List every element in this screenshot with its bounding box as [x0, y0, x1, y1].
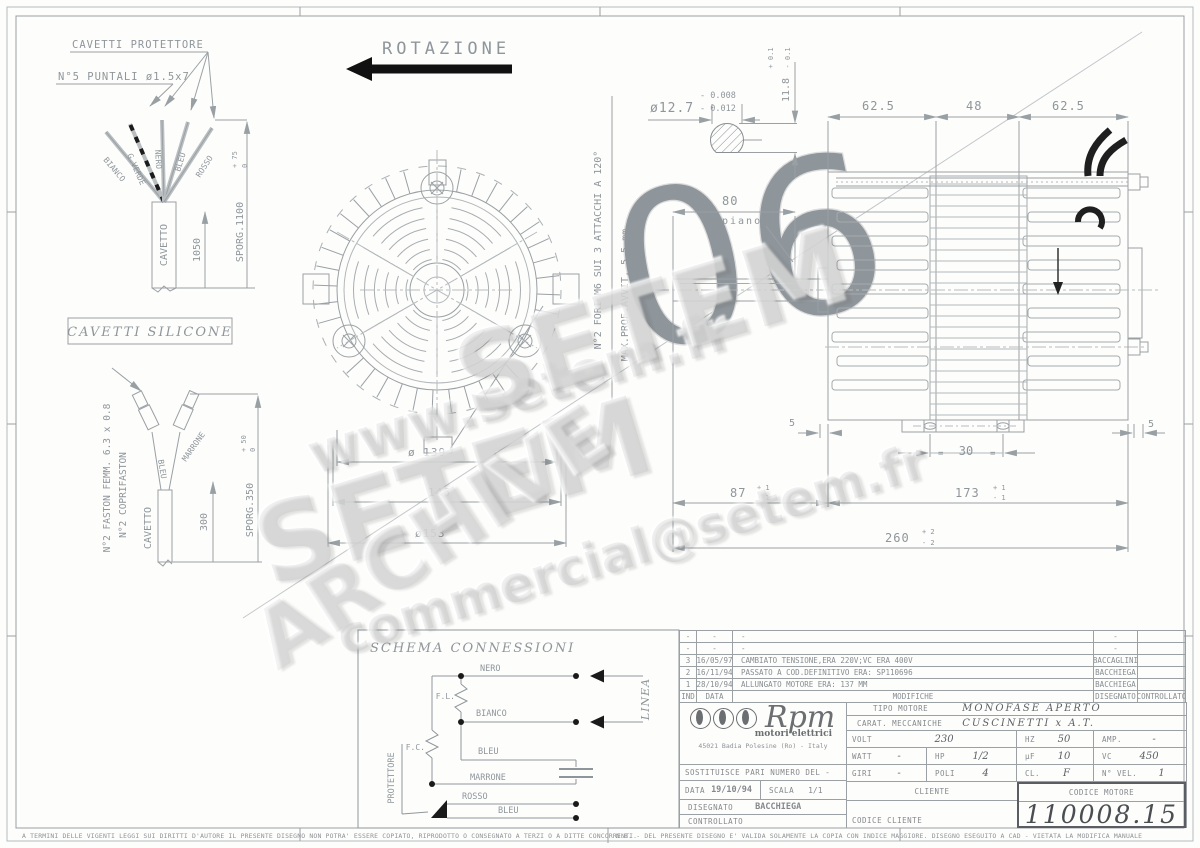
- watt-label: WATT: [847, 752, 872, 761]
- cliente-label: CLIENTE: [914, 787, 949, 796]
- brand-subtitle: motori elettrici: [680, 729, 846, 739]
- rev-chk: [1138, 679, 1186, 691]
- faston-note: N°2 FASTON FEMM. 6.3 x 0.8: [102, 403, 113, 552]
- hz-value: 50: [1058, 734, 1071, 745]
- tipo-motore-cell: TIPO MOTORE MONOFASE APERTO: [847, 702, 1186, 716]
- rev-chk: [1138, 667, 1186, 679]
- flat-tol-minus: - 0.1: [784, 47, 792, 68]
- amp-value: -: [1152, 734, 1155, 745]
- revision-table: - - - - - - - - 3 16/05/97 CAMBIATO TENS…: [679, 630, 1186, 703]
- rotation-label: ROTAZIONE: [382, 39, 510, 59]
- footer-validity-note: N.B. - DEL PRESENTE DISEGNO E' VALIDA SO…: [616, 832, 1142, 840]
- rpm-logo-icon: [736, 708, 757, 729]
- uf-value: 10: [1058, 751, 1071, 762]
- codice-motore-label: CODICE MOTORE: [1069, 788, 1134, 797]
- dim-sporg1100: SPORG.1100: [235, 202, 246, 262]
- schema-title: SCHEMA CONNESSIONI: [370, 641, 575, 656]
- volt-label: VOLT: [847, 735, 872, 744]
- rev-desc: CAMBIATO TENSIONE,ERA 220V;VC ERA 400V: [733, 655, 1094, 667]
- schema-connessioni: SCHEMA CONNESSIONI NERO BIANCO F.L. F.C.: [358, 630, 679, 828]
- silicone-cable-label: CAVETTO: [143, 507, 154, 549]
- rev-chk: [1138, 643, 1186, 655]
- schema-nero: NERO: [480, 664, 500, 674]
- carat-value: CUSCINETTI x A.T.: [962, 718, 1095, 729]
- poli-cell: POLI 4: [927, 765, 1017, 782]
- disegnato-label: DISEGNATO: [680, 803, 733, 812]
- vc-cell: VC 450: [1094, 748, 1186, 765]
- controllato-cell: CONTROLLATO: [680, 815, 847, 828]
- protettore-contact: [431, 800, 447, 818]
- company-logo-cell: Rpm motori elettrici 45021 Badia Polesin…: [680, 702, 847, 765]
- codice-cliente-label: CODICE CLIENTE: [852, 816, 922, 825]
- footer-copyright-note: A TERMINI DELLE VIGENTI LEGGI SUI DIRITT…: [22, 832, 637, 840]
- codice-motore-value: 110008.15: [1025, 800, 1178, 829]
- schema-fc: F.C.: [406, 743, 425, 752]
- cavetti-protettore-title: CAVETTI PROTETTORE: [72, 39, 204, 51]
- dim-sporg350: SPORG.350: [245, 483, 256, 537]
- cavetti-protettore-detail: CAVETTI PROTETTORE N°5 PUNTALI ø1.5x7 BI…: [56, 39, 255, 292]
- codice-motore-box: CODICE MOTORE 110008.15: [1017, 782, 1186, 828]
- cable-label: CAVETTO: [159, 224, 170, 266]
- flat-tol-plus: + 0.1: [767, 47, 775, 68]
- dim-87: 87: [730, 486, 746, 500]
- hz-cell: HZ 50: [1017, 731, 1094, 748]
- schema-bianco: BIANCO: [476, 709, 507, 719]
- dim-62-left: 62.5: [862, 99, 895, 113]
- shaft-tol-bot: - 0.012: [700, 104, 736, 114]
- nvel-value: 1: [1158, 768, 1164, 779]
- sostituisce-value: -: [825, 768, 830, 777]
- rev-ind: 1: [680, 679, 697, 691]
- amp-cell: AMP. -: [1094, 731, 1186, 748]
- rev-date: 16/11/94: [697, 667, 733, 679]
- hp-label: HP: [927, 752, 945, 761]
- cliente-cell: CLIENTE: [847, 782, 1017, 801]
- giri-value: -: [897, 768, 900, 779]
- dim-fan-diameter: ø 139: [408, 446, 446, 459]
- uf-label: µF: [1017, 752, 1035, 761]
- rev-date: -: [697, 643, 733, 655]
- schema-fl: F.L.: [436, 692, 455, 701]
- rev-by: -: [1094, 643, 1138, 655]
- dim-80: 80: [722, 194, 738, 208]
- watt-cell: WATT -: [847, 748, 927, 765]
- volt-value: 230: [934, 734, 953, 745]
- rev-by: BACCHIEGA: [1094, 667, 1138, 679]
- tipo-label: TIPO MOTORE: [847, 704, 928, 713]
- schema-linea: LINEA: [639, 678, 652, 721]
- depth-note: MAX.PROF.AVVIT. 5.5 mm: [620, 229, 631, 361]
- giri-cell: GIRI -: [847, 765, 927, 782]
- rpm-logo-icon: [690, 708, 711, 729]
- dim-173-minus: - 1: [993, 494, 1006, 502]
- coprifaston-note: N°2 COPRIFASTON: [118, 452, 129, 538]
- data-scala-cell: DATA 19/10/94 SCALA 1/1: [680, 781, 847, 800]
- dim-62-right: 62.5: [1052, 99, 1085, 113]
- wire-label-nero: NERO: [153, 150, 163, 170]
- motor-lead-wires: [1078, 130, 1126, 228]
- rev-by: -: [1094, 631, 1138, 643]
- giri-label: GIRI: [847, 769, 872, 778]
- foot-eq-left: =: [938, 449, 944, 459]
- data-value: 19/10/94: [711, 785, 752, 795]
- rev-desc: ALLUNGATO MOTORE ERA: 137 MM: [733, 679, 1094, 691]
- puntali-note: N°5 PUNTALI ø1.5x7: [58, 71, 190, 83]
- schema-marrone: MARRONE: [470, 773, 506, 783]
- controllato-label: CONTROLLATO: [680, 817, 743, 826]
- rev-by: BACCAGLINI: [1094, 655, 1138, 667]
- rev-date: -: [697, 631, 733, 643]
- dim-260-plus: + 2: [922, 528, 935, 536]
- vc-label: VC: [1094, 752, 1112, 761]
- schema-bleu-top: BLEU: [478, 747, 498, 757]
- linea-arrow-1: [590, 670, 604, 683]
- carat-meccaniche-cell: CARAT. MECCANICHE CUSCINETTI x A.T.: [847, 716, 1186, 731]
- dim-173: 173: [955, 486, 980, 500]
- cl-label: CL.: [1017, 769, 1040, 778]
- poli-value: 4: [982, 768, 988, 779]
- rpm-logo-icon: [713, 708, 734, 729]
- rev-date: 16/05/97: [697, 655, 733, 667]
- rev-ind: 3: [680, 655, 697, 667]
- watt-value: -: [897, 751, 900, 762]
- holes-note: N°2 FORI M6 SUI 3 ATTACCHI A 120°: [593, 151, 604, 350]
- carat-label: CARAT. MECCANICHE: [847, 719, 942, 728]
- front-view: ø 139 146 ø153 N°2 FORI M6 SUI 3 ATTACCH…: [303, 96, 631, 547]
- drawing-sheet: www.setem.fr SETEM SETEM commercial@sete…: [0, 0, 1200, 848]
- stator-laminations: [930, 184, 1027, 415]
- rev-desc: PASSATO A COD.DEFINITIVO ERA: SP110696: [733, 667, 1094, 679]
- dim-173-plus: + 1: [993, 484, 1006, 492]
- schema-bleu-bottom: BLEU: [498, 806, 518, 816]
- vc-value: 450: [1139, 751, 1158, 762]
- dim-5-right: 5: [1148, 419, 1154, 430]
- rev-desc: -: [733, 643, 1094, 655]
- wire-label-bianco: BIANCO: [101, 156, 127, 184]
- tipo-value: MONOFASE APERTO: [962, 703, 1101, 714]
- rev-date: 28/10/94: [697, 679, 733, 691]
- dim-87-plus: + 1: [757, 484, 770, 492]
- nvel-label: N° VEL.: [1094, 769, 1137, 778]
- silicone-wire-marrone: MARRONE: [180, 430, 207, 463]
- dim-87-minus: - 1: [757, 494, 770, 502]
- wire-label-rosso: ROSSO: [194, 154, 215, 179]
- watermark-ghost-digits: 06: [588, 102, 908, 404]
- cavetti-silicone-title: CAVETTI SILICONE: [67, 325, 233, 340]
- dim-sporg350-plus: + 50: [240, 435, 248, 452]
- rev-chk: [1138, 655, 1186, 667]
- uf-cell: µF 10: [1017, 748, 1094, 765]
- schema-rosso: ROSSO: [462, 792, 488, 802]
- schema-protettore: PROTETTORE: [387, 752, 397, 803]
- data-label: DATA: [680, 786, 705, 795]
- hz-label: HZ: [1017, 735, 1035, 744]
- rev-ind: -: [680, 631, 697, 643]
- cl-value: F: [1063, 768, 1070, 779]
- scala-value: 1/1: [808, 786, 822, 795]
- hp-value: 1/2: [972, 751, 988, 762]
- scala-label: SCALA: [761, 786, 794, 795]
- rev-ind: -: [680, 643, 697, 655]
- dim-1050: 1050: [192, 238, 203, 262]
- dim-300: 300: [199, 513, 210, 531]
- dim-153: ø153: [415, 527, 446, 540]
- dim-sporg350-minus: 0: [249, 448, 257, 452]
- dim-sporg1100-minus: 0: [241, 164, 249, 168]
- cl-cell: CL. F: [1017, 765, 1094, 782]
- rev-desc: -: [733, 631, 1094, 643]
- poli-label: POLI: [927, 769, 955, 778]
- foot-eq-right: =: [990, 449, 996, 459]
- disegnato-value: BACCHIEGA: [755, 802, 801, 812]
- hp-cell: HP 1/2: [927, 748, 1017, 765]
- sostituisce-label: SOSTITUISCE PARI NUMERO DEL: [685, 768, 820, 777]
- amp-label: AMP.: [1094, 735, 1122, 744]
- dim-146: 146: [428, 486, 451, 499]
- cavetti-silicone-detail: CAVETTI SILICONE N°2 FASTON FEMM. 6.3 x …: [67, 318, 262, 566]
- volt-cell: VOLT 230: [847, 731, 1017, 748]
- nvel-cell: N° VEL. 1: [1094, 765, 1186, 782]
- flat-dim: 11.8: [781, 78, 792, 102]
- company-address: 45021 Badia Polesine (Ro) - Italy: [680, 742, 846, 750]
- rotation-indicator: ROTAZIONE: [346, 39, 512, 81]
- title-block: Rpm motori elettrici 45021 Badia Polesin…: [679, 702, 1187, 828]
- linea-arrow-2: [590, 716, 604, 729]
- piano-label: piano: [722, 216, 762, 227]
- dim-260-minus: - 2: [922, 539, 935, 547]
- dim-5-left: 5: [789, 418, 795, 429]
- brand-name: Rpm: [765, 707, 835, 729]
- sostituisce-cell: SOSTITUISCE PARI NUMERO DEL -: [680, 765, 847, 781]
- dim-30: 30: [959, 444, 973, 458]
- rev-by: BACCHIEGA: [1094, 679, 1138, 691]
- codice-cliente-cell: CODICE CLIENTE: [847, 801, 1017, 828]
- dim-48: 48: [966, 99, 982, 113]
- shaft-diameter: ø12.7: [650, 101, 694, 116]
- dim-260: 260: [885, 531, 910, 545]
- rev-ind: 2: [680, 667, 697, 679]
- silicone-wire-bleu: BLEU: [156, 459, 168, 480]
- rev-chk: [1138, 631, 1186, 643]
- shaft-tol-top: - 0.008: [700, 91, 736, 101]
- disegnato-cell: DISEGNATO BACCHIEGA: [680, 800, 847, 815]
- schema-junction-dots: [429, 670, 604, 822]
- dim-sporg1100-plus: + 75: [231, 151, 239, 168]
- wire-labels: BIANCO G.VERDE NERO BLEU ROSSO: [101, 150, 214, 187]
